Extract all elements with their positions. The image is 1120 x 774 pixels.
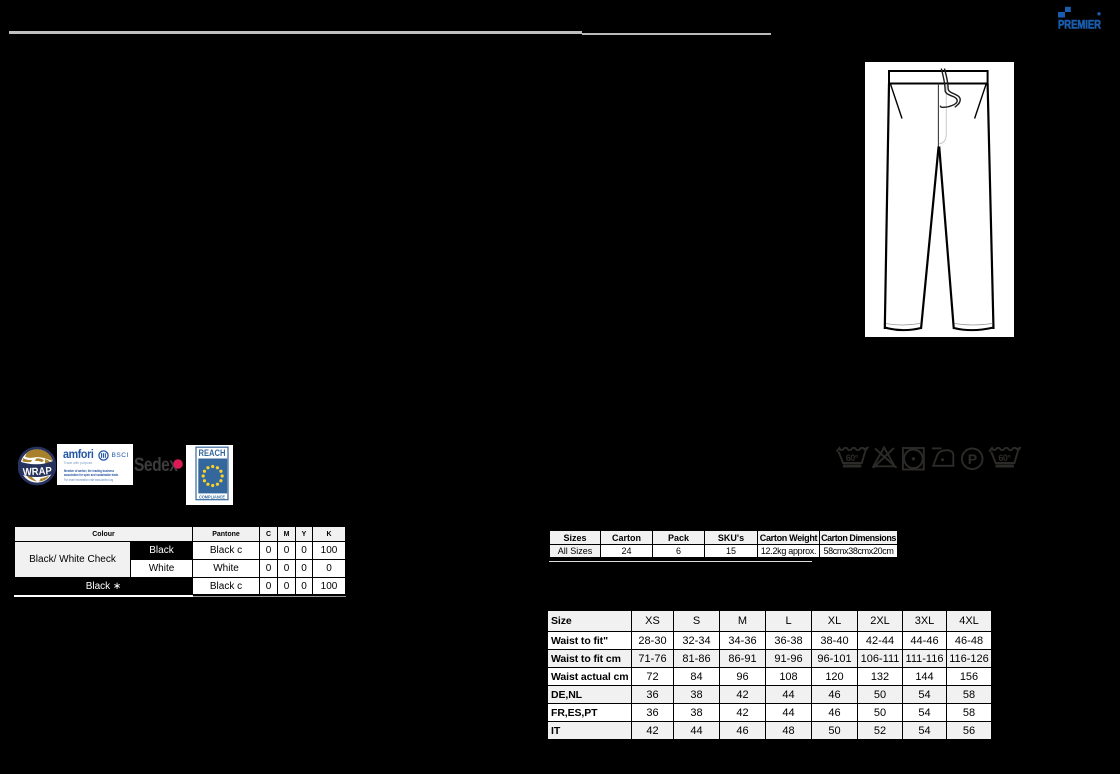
svg-text:60°: 60° (846, 453, 859, 463)
svg-text:COMPLIANCE: COMPLIANCE (199, 495, 226, 501)
svg-text:WRAP: WRAP (22, 465, 52, 479)
svg-text:REACH: REACH (199, 448, 226, 459)
svg-text:60°: 60° (998, 453, 1011, 463)
svg-text:P: P (968, 451, 977, 467)
svg-text:PREMIER: PREMIER (1058, 19, 1102, 31)
